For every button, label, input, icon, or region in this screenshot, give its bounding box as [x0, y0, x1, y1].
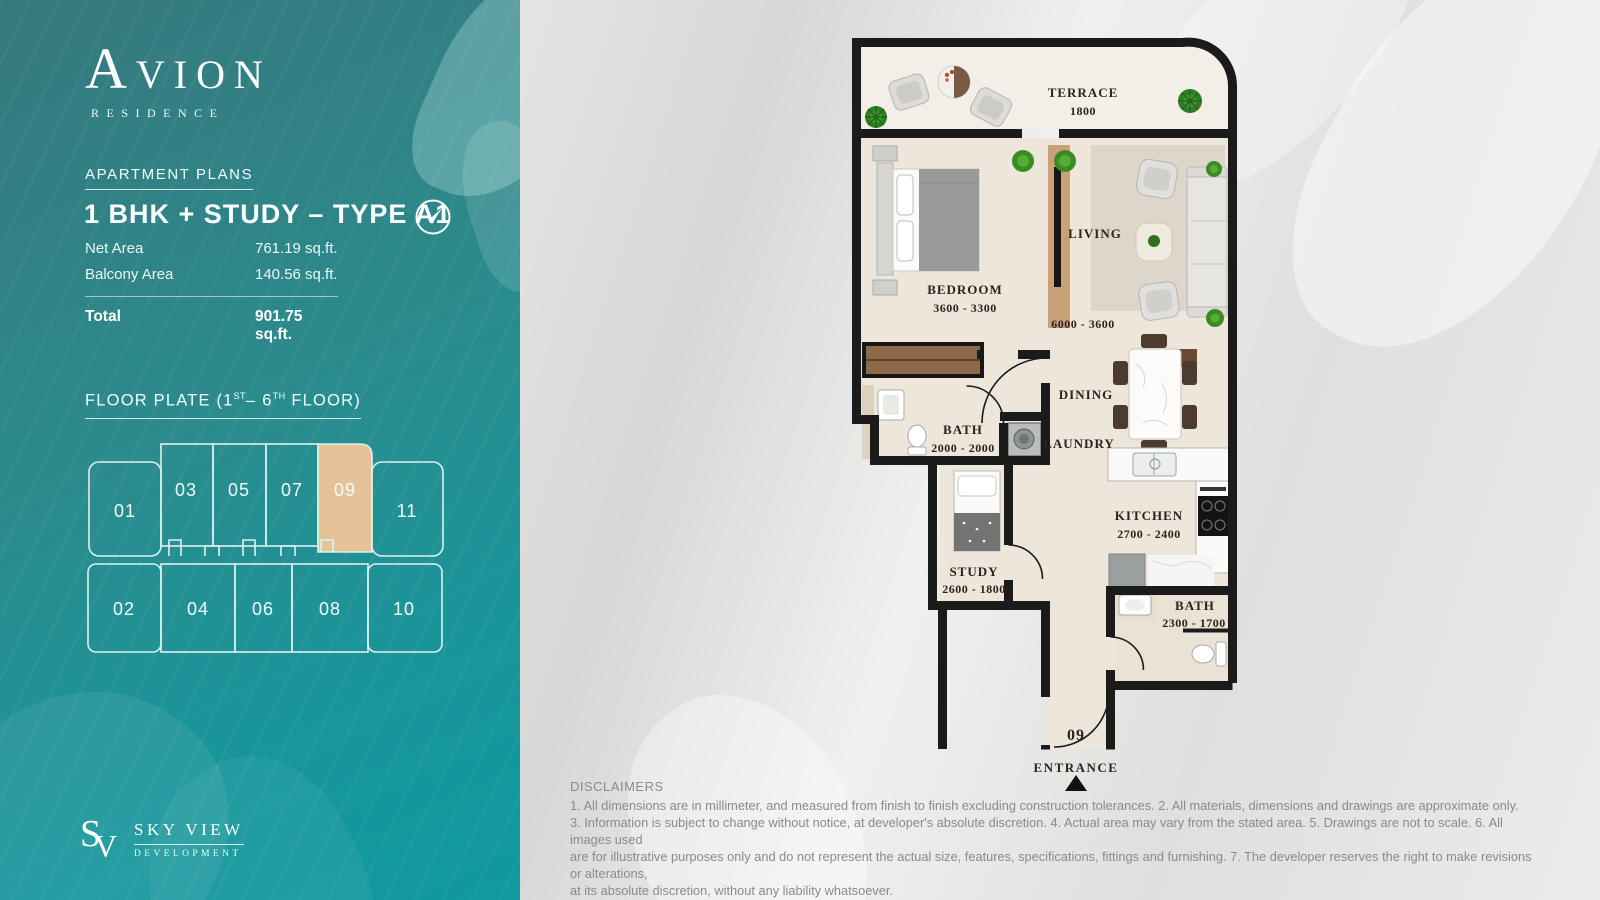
plate-unit-label: 08	[319, 599, 341, 619]
plate-unit-label: 09	[334, 480, 356, 500]
blanket-dot	[969, 540, 972, 543]
balcony-area-label: Balcony Area	[85, 266, 173, 283]
net-area-value: 761.19 sq.ft.	[255, 240, 338, 257]
kitchen-label: KITCHEN	[1115, 508, 1183, 523]
kitchen-marble	[1148, 555, 1214, 587]
bath1-label: BATH	[943, 422, 983, 437]
panel-leaf-decoration	[444, 110, 520, 299]
dining-label: DINING	[1059, 387, 1113, 402]
blanket-dot	[989, 522, 992, 525]
disclaimer-line: 3. Information is subject to change with…	[570, 814, 1540, 848]
brand-tagline: RESIDENCE	[91, 106, 272, 121]
table-decor	[945, 78, 949, 82]
table-decor	[945, 73, 949, 77]
washer-drum	[1019, 434, 1029, 444]
bed-pillow	[897, 175, 913, 215]
unit-title: 1 BHK + STUDY – TYPE A1	[84, 199, 451, 230]
blanket-dot	[983, 540, 986, 543]
table-decor	[950, 70, 954, 74]
bath2-basin	[1125, 599, 1145, 611]
plate-unit-label: 06	[252, 599, 274, 619]
floor-plan: TERRACE 1800 BEDROOM 3600 - 3300 LIVING …	[843, 33, 1243, 793]
balcony-area-value: 140.56 sq.ft.	[255, 266, 338, 283]
laundry-label: LAUNDRY	[1043, 436, 1115, 451]
kitchen-dims: 2700 - 2400	[1117, 527, 1181, 541]
nightstand	[873, 146, 897, 161]
brand-name: AVION	[85, 40, 272, 98]
developer-subtitle: DEVELOPMENT	[134, 849, 244, 859]
plant	[1012, 150, 1034, 172]
dining-chair	[1113, 405, 1128, 429]
terrace-dims: 1800	[1070, 104, 1096, 118]
bath2-label: BATH	[1175, 598, 1215, 613]
developer-logo: S V SKY VIEW DEVELOPMENT	[80, 812, 244, 866]
plate-unit-label: 03	[175, 480, 197, 500]
brand-logo: AVION RESIDENCE	[85, 40, 272, 121]
dining-chair	[1141, 334, 1167, 348]
balcony-area-row: Balcony Area 140.56 sq.ft.	[85, 266, 340, 283]
plate-unit-label: 01	[114, 501, 136, 521]
bed-pillow	[897, 221, 913, 261]
total-value: 901.75 sq.ft.	[255, 308, 340, 344]
sofa	[1187, 177, 1227, 307]
bath2-toilet-tank	[1216, 642, 1226, 666]
direction-plane-icon	[414, 198, 452, 236]
study-pillow	[958, 476, 996, 496]
disclaimers: DISCLAIMERS 1. All dimensions are in mil…	[570, 779, 1540, 899]
bath1-toilet	[908, 425, 926, 447]
floor-plate-diagram: 01 03 05 07 09 11 02 04 06 08 10	[85, 438, 445, 658]
plant	[1206, 161, 1222, 177]
section-label: APARTMENT PLANS	[85, 166, 253, 190]
plant	[1054, 150, 1076, 172]
total-area-row: Total 901.75 sq.ft.	[85, 308, 340, 326]
disclaimer-line: at its absolute discretion, without any …	[570, 882, 1540, 899]
floor-plate-heading: FLOOR PLATE (1ST– 6TH FLOOR)	[85, 391, 361, 419]
study-label: STUDY	[949, 564, 998, 579]
developer-monogram: S V	[80, 812, 126, 866]
net-area-label: Net Area	[85, 240, 143, 257]
bath2-dims: 2300 - 1700	[1162, 616, 1226, 630]
plate-unit-label: 11	[397, 501, 418, 521]
bath1-basin	[883, 395, 899, 415]
nightstand	[873, 280, 897, 295]
bed-headboard	[877, 163, 893, 275]
developer-name: SKY VIEW	[134, 820, 244, 845]
entrance-label: ENTRANCE	[1034, 760, 1119, 775]
terrace-label: TERRACE	[1048, 85, 1119, 100]
bath2-toilet	[1192, 645, 1214, 663]
plant	[1206, 309, 1224, 327]
living-armchair	[1138, 281, 1181, 322]
study-dims: 2600 - 1800	[942, 582, 1006, 596]
living-dims: 6000 - 3600	[1051, 317, 1115, 331]
dining-chair	[1182, 361, 1197, 385]
living-label: LIVING	[1068, 226, 1122, 241]
dining-table	[1129, 349, 1181, 439]
divider-line	[85, 296, 338, 297]
dining-chair	[1113, 361, 1128, 385]
disclaimer-line: are for illustrative purposes only and d…	[570, 848, 1540, 882]
disclaimers-title: DISCLAIMERS	[570, 779, 1540, 794]
stove-controls	[1200, 487, 1226, 491]
bed-duvet	[919, 169, 979, 271]
blanket-dot	[976, 528, 979, 531]
blanket-dot	[963, 522, 966, 525]
bedroom-dims: 3600 - 3300	[933, 301, 997, 315]
plant	[865, 106, 887, 128]
bath1-toilet-tank	[908, 447, 926, 455]
plate-core-outline	[169, 540, 333, 556]
living-armchair	[1135, 158, 1179, 200]
bedroom-label: BEDROOM	[927, 282, 1003, 297]
total-label: Total	[85, 308, 121, 325]
background-leaf-decoration	[1246, 0, 1600, 404]
net-area-row: Net Area 761.19 sq.ft.	[85, 240, 340, 257]
plate-unit-label: 07	[281, 480, 303, 500]
plate-unit-label: 05	[228, 480, 250, 500]
plate-unit-label: 02	[113, 599, 135, 619]
bath1-dims: 2000 - 2000	[931, 441, 995, 455]
brochure-page: AVION RESIDENCE APARTMENT PLANS 1 BHK + …	[0, 0, 1600, 900]
plant	[1178, 89, 1202, 113]
tv-screen	[1054, 167, 1061, 287]
plate-unit-label: 10	[393, 599, 415, 619]
kitchen-island	[1109, 554, 1145, 587]
panel-leaf-decoration	[394, 0, 520, 230]
study-blanket	[954, 513, 1000, 551]
plate-unit-label: 04	[187, 599, 209, 619]
dining-chair	[1182, 405, 1197, 429]
disclaimer-line: 1. All dimensions are in millimeter, and…	[570, 797, 1540, 814]
entrance-unit-number: 09	[1067, 727, 1085, 744]
coffee-table-plant	[1148, 235, 1160, 247]
